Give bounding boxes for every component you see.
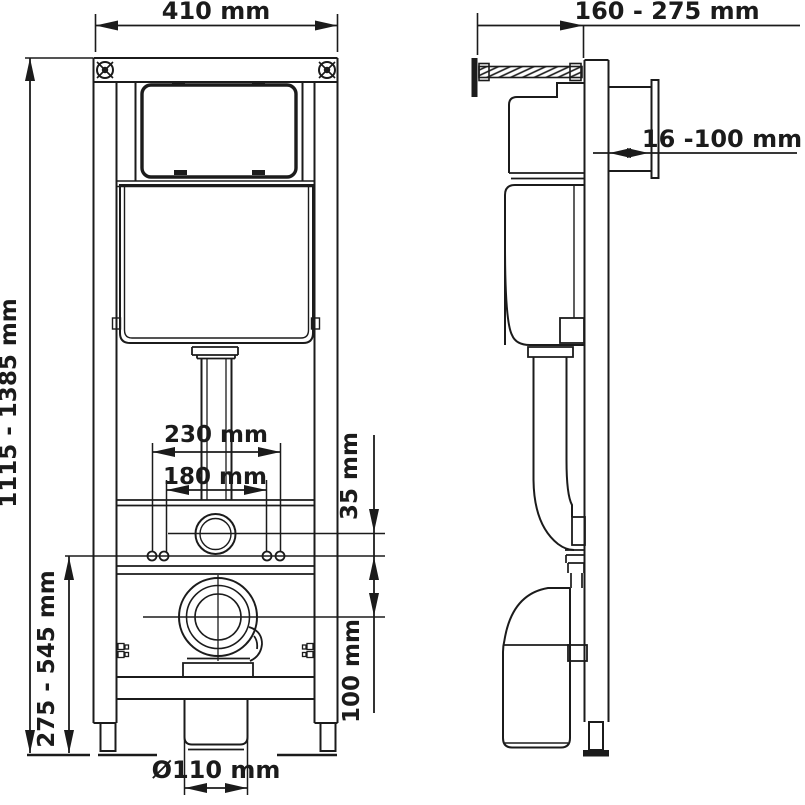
threaded-rod — [479, 67, 582, 78]
dim-outlet-height-label: 275 - 545 mm — [34, 570, 60, 748]
dim-410-label: 410 mm — [162, 0, 270, 25]
dim-180-label: 180 mm — [163, 464, 267, 490]
side-foot-base-plate — [583, 750, 609, 757]
dim-110-label: Ø110 mm — [152, 756, 281, 784]
dim-100-label: 100 mm — [339, 619, 365, 723]
dim-35-label: 35 mm — [337, 432, 363, 520]
dim-offset-label: 16 -100 mm — [642, 125, 802, 153]
dim-230-label: 230 mm — [164, 422, 268, 448]
dim-depth-label: 160 - 275 mm — [574, 0, 759, 25]
drawing-background — [0, 0, 805, 805]
technical-drawing: 410 mm 160 - 275 mm 16 -100 mm 1115 - 13… — [0, 0, 805, 805]
drawing-canvas: 410 mm 160 - 275 mm 16 -100 mm 1115 - 13… — [0, 0, 805, 805]
dim-height-label: 1115 - 1385 mm — [0, 298, 22, 508]
wall-anchor-bracket — [472, 58, 478, 97]
